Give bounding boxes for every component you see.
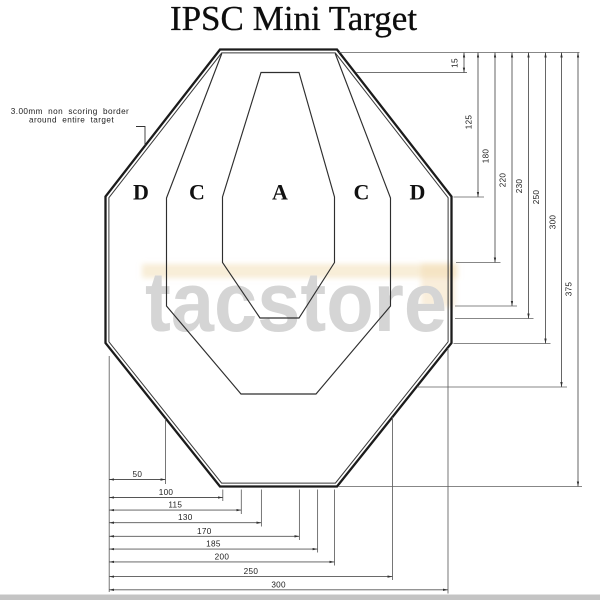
svg-text:185: 185	[206, 540, 221, 549]
svg-text:300: 300	[549, 215, 558, 230]
svg-text:300: 300	[271, 580, 286, 589]
svg-text:375: 375	[565, 282, 574, 297]
svg-text:250: 250	[532, 190, 541, 205]
svg-text:230: 230	[515, 179, 524, 194]
svg-text:200: 200	[215, 552, 230, 561]
svg-text:15: 15	[451, 58, 460, 68]
svg-text:130: 130	[178, 513, 193, 522]
svg-text:IPSC Mini Target: IPSC Mini Target	[170, 0, 417, 38]
svg-text:125: 125	[465, 115, 474, 130]
svg-text:D: D	[133, 180, 149, 205]
svg-text:180: 180	[482, 149, 491, 164]
svg-text:A: A	[272, 180, 288, 205]
svg-text:100: 100	[159, 488, 174, 497]
svg-text:D: D	[410, 180, 426, 205]
svg-text:C: C	[189, 180, 205, 205]
svg-text:C: C	[354, 180, 370, 205]
svg-text:250: 250	[244, 567, 259, 576]
svg-text:170: 170	[197, 527, 212, 536]
svg-text:115: 115	[168, 501, 182, 510]
svg-text:220: 220	[499, 173, 508, 188]
svg-text:around entire target: around entire target	[29, 116, 114, 125]
svg-text:50: 50	[133, 470, 143, 479]
